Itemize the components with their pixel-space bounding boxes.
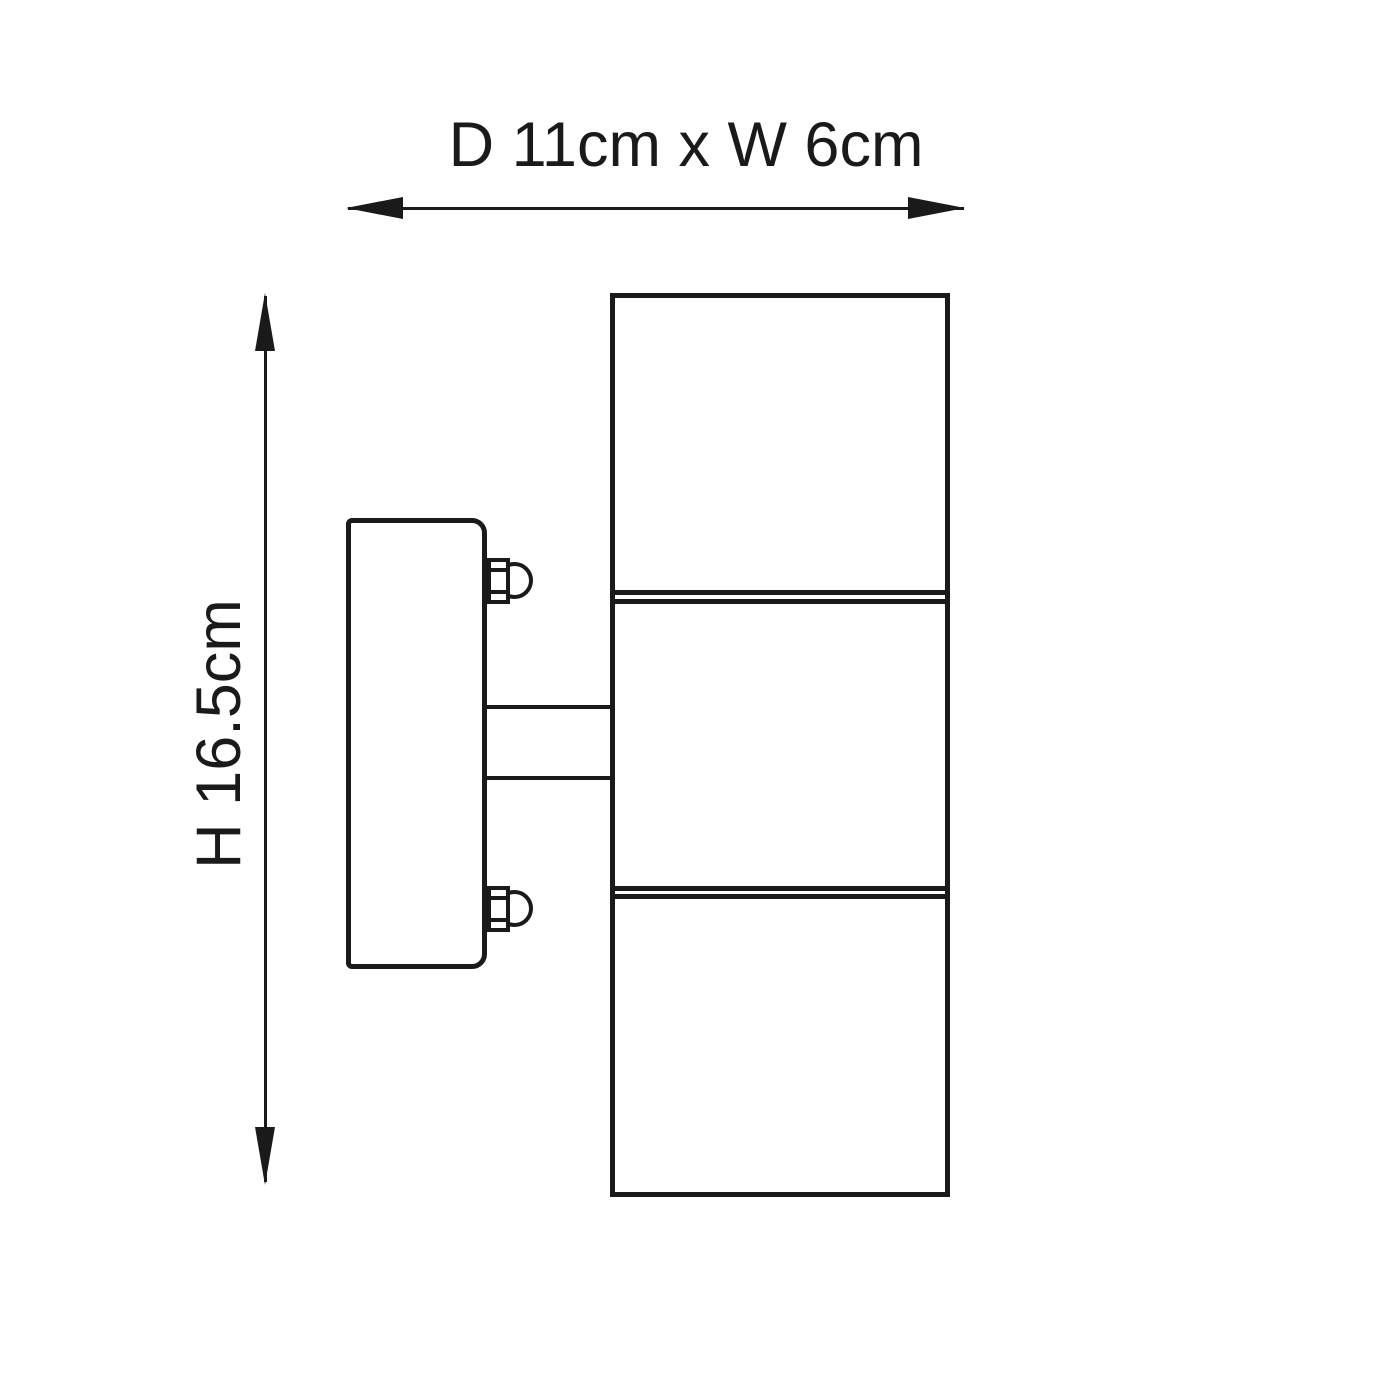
arrow-right-icon	[908, 197, 965, 219]
lamp-section-divider-bottom-line1	[610, 886, 950, 891]
dimension-diagram: D 11cm x W 6cm H 16.5cm	[0, 0, 1400, 1400]
width-dimension-label: D 11cm x W 6cm	[346, 110, 1026, 180]
lamp-section-divider-bottom-line2	[610, 894, 950, 899]
height-dimension-label: H 16.5cm	[184, 534, 254, 934]
lamp-section-divider-top-line1	[610, 590, 950, 595]
screw-bottom	[487, 886, 510, 932]
screw-top-flange-upper	[487, 568, 510, 572]
arrow-down-icon	[255, 1127, 275, 1185]
screw-top	[487, 558, 510, 604]
lamp-section-divider-top-line2	[610, 599, 950, 604]
lamp-cylinder-body	[610, 293, 950, 1197]
mounting-arm	[487, 705, 610, 780]
width-dimension-line	[348, 207, 964, 210]
arrow-left-icon	[346, 197, 403, 219]
height-dimension-line	[264, 296, 267, 1182]
wall-back-plate	[346, 518, 487, 969]
screw-bottom-flange-upper	[487, 896, 510, 900]
screw-bottom-flange-lower	[487, 918, 510, 922]
screw-top-flange-lower	[487, 590, 510, 594]
arrow-up-icon	[255, 293, 275, 351]
